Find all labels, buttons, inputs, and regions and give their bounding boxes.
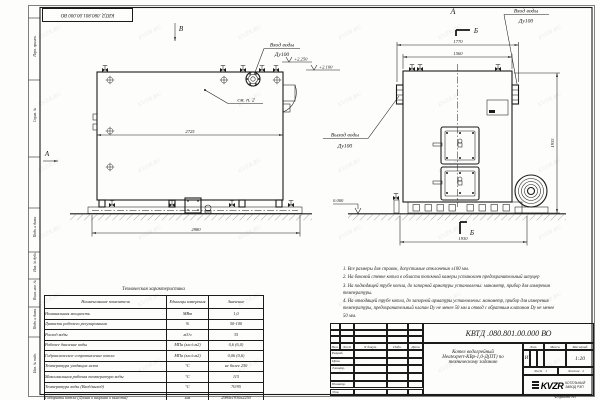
row-units: м3/ч [167, 330, 209, 341]
valve-icon [417, 65, 423, 72]
dim-1560: 1560 [453, 51, 463, 56]
kvzr-logo-icon [532, 381, 539, 390]
row-name: Температура уходящих газов [45, 361, 167, 372]
inlet-callout-dn: Ду100 [274, 52, 290, 58]
lifting-mark-icon [106, 127, 115, 136]
table-row: Номинальная мощностьМВт1,0 [45, 309, 264, 320]
scale-label: Масштаб [566, 343, 594, 350]
outlet-flange-icon [397, 85, 404, 104]
title-block: КВТД .080.801.00.000 ВО Изм. Лист N доку… [330, 323, 594, 396]
annotations [43, 15, 549, 214]
row-value: 50-100 [209, 319, 264, 330]
col-ndoc: N докум. [354, 343, 387, 350]
drain-valve-icon [393, 194, 399, 201]
dim-2725: 2725 [185, 129, 195, 134]
table-row: Температура уходящих газов°Сне более 250 [45, 361, 264, 372]
col-izm: Изм. [330, 343, 340, 350]
row-name: Рабочее давление воды [45, 340, 167, 351]
tech-col-value: Значение [209, 296, 264, 309]
sheets-cell: Листов 2 [558, 367, 594, 375]
inlet2-callout-label: Вход воды [514, 8, 539, 15]
tech-col-name: Наименование показателя [45, 296, 167, 309]
row-units: °С [167, 372, 209, 383]
row-prov: Пров. [330, 358, 354, 366]
notes-block: 1. Все размеры для справок, допустимые о… [343, 266, 559, 321]
tech-table-title: Техническая характеристика [44, 285, 263, 295]
kvzr-logo-subtitle: КОТЕЛЬНЫЙ ЗАВОД РЭП [565, 382, 585, 389]
lower-door [433, 167, 479, 200]
outlet-callout-label: Выход воды [331, 132, 359, 139]
col-data: Дата [408, 343, 423, 350]
inlet2-callout-dn: Ду100 [518, 19, 534, 25]
table-row: Гидравлическое сопротивление котлаМПа (к… [45, 351, 264, 362]
lit-value: И [523, 350, 530, 367]
row-name: Температура воды (Вход/выход) [45, 382, 167, 393]
dim-height: 1935 [550, 138, 555, 148]
format-label: Формат А3 [538, 394, 592, 399]
inlet-flange-icon [512, 85, 519, 104]
view-a-title: А [450, 7, 456, 16]
drain-valve-icon [109, 201, 115, 208]
logo-sub2: ЗАВОД РЭП [565, 386, 585, 390]
row-value: не более 250 [209, 361, 264, 372]
sheets-label: Листов [568, 369, 579, 373]
table-row: Диапазон рабочего регулирования%50-100 [45, 319, 264, 330]
drawing-sheet: KVZR.RUKVZR.RUKVZR.RUKVZR.RUKVZR.RUKVZR.… [0, 0, 600, 400]
dim-2980: 2980 [191, 227, 201, 232]
table-row: Рабочее давление водыМПа (кгс/см2)0,6 (6… [45, 340, 264, 351]
row-value: 1,0 [209, 309, 264, 320]
view-a-arrow-label: А [44, 150, 50, 158]
row-tkontr: Т.контр. [330, 365, 354, 373]
row-name: Номинальная мощность [45, 309, 167, 320]
note-1: 1. Все размеры для справок, допустимые о… [343, 266, 559, 273]
inlet-callout-label: Вход воды [270, 42, 295, 49]
row-name: Гидравлическое сопротивление котла [45, 351, 167, 362]
lifting-mark-icon [273, 76, 282, 85]
margin-label: Перв. примен. [33, 16, 37, 76]
row-value: 2980х1930х2250 [209, 393, 264, 400]
valve-icon [495, 65, 501, 72]
elevation-2250: +2.250 [294, 57, 308, 62]
drain-valve-icon [288, 201, 294, 208]
table-row: Габариты котла (Длина х ширина х высота)… [45, 393, 264, 400]
mass-label: Масса [544, 343, 566, 350]
product-name-line3: техническому заданию [424, 360, 522, 365]
control-panel [487, 100, 508, 115]
row-value: 70/95 [209, 382, 264, 393]
inlet-flange-icon [246, 72, 260, 86]
row-name: Максимальная рабочая температура воды [45, 372, 167, 383]
row-value: 0,6 (6,0) [209, 340, 264, 351]
col-podp: Подп. [387, 343, 408, 350]
col-list: Лист [340, 343, 354, 350]
row-units: МВт [167, 309, 209, 320]
lifting-mark-icon [106, 76, 115, 85]
drain-valve-icon [169, 201, 175, 208]
valve-icon [240, 66, 246, 73]
view-b-label: В [179, 25, 184, 33]
row-name: Расход воды [45, 330, 167, 341]
boiler-side-view [70, 66, 312, 237]
row-units: % [167, 319, 209, 330]
row-value: 35 [209, 330, 264, 341]
lifting-mark-icon [106, 163, 115, 172]
scale-value: 1:20 [566, 350, 594, 367]
lit-label: Лит. [523, 343, 544, 350]
sheets-value: 2 [582, 369, 584, 373]
margin-label: Инв. № подл. [33, 333, 37, 393]
valve-icon [409, 65, 415, 72]
dim-1930: 1930 [458, 236, 468, 241]
row-units: °С [167, 382, 209, 393]
tech-characteristics: Техническая характеристика Наименование … [44, 285, 263, 400]
row-units: мм [167, 393, 209, 400]
drain-valve-icon [229, 201, 235, 208]
row-nkontr: Н.контр. [330, 381, 354, 389]
elevation-2100: +2.100 [319, 65, 333, 70]
row-razrab: Разраб. [330, 350, 354, 358]
row-units: °С [167, 361, 209, 372]
table-row: Расход водым3/ч35 [45, 330, 264, 341]
note-3: 3. На подводящей трубе котла, до запорно… [343, 283, 559, 298]
row-units: МПа (кгс/см2) [167, 351, 209, 362]
mass-value [544, 350, 566, 367]
row-value: 115 [209, 372, 264, 383]
table-row: Температура воды (Вход/выход)°С70/95 [45, 382, 264, 393]
elevation-0000: 0.000 [333, 198, 344, 203]
row-name: Диапазон рабочего регулирования [45, 319, 167, 330]
boiler-front-view [348, 30, 566, 246]
valve-icon [273, 66, 279, 73]
tech-col-units: Единицы измерения [167, 296, 209, 309]
row-name: Габариты котла (Длина х ширина х высота) [45, 393, 167, 400]
valve-icon [220, 66, 226, 73]
lifting-mark-icon [220, 76, 229, 85]
row-value: 0,06 (0,6) [209, 351, 264, 362]
see-note-label: см. п. 2 [237, 98, 254, 104]
valve-icon [102, 66, 108, 73]
doc-number: КВТД .080.801.00.000 ВО [423, 323, 594, 343]
outlet-callout-dn: Ду100 [337, 144, 353, 150]
sheet-cell: Лист 1 [523, 367, 558, 375]
dim-1770: 1770 [453, 39, 463, 44]
row-utv: Утв. [330, 389, 354, 397]
row-units: МПа (кгс/см2) [167, 340, 209, 351]
sheet-label: Лист [534, 369, 542, 373]
margin-label: Справ. № [33, 85, 37, 145]
section-b-top-label: Б [473, 27, 478, 35]
sheet-value: 1 [545, 369, 547, 373]
table-row: Максимальная рабочая температура воды°С1… [45, 372, 264, 383]
upper-door [433, 127, 479, 164]
revision-grid [330, 323, 423, 343]
top-stamp-doc-number: КВТД .080.801.00.000 ВО [42, 8, 133, 22]
blower-fan-icon [515, 175, 548, 213]
valve-icon [259, 66, 265, 73]
note-2: 2. На боковой стенке котла в области топ… [343, 274, 559, 281]
company-cell: KVZR КОТЕЛЬНЫЙ ЗАВОД РЭП [523, 375, 594, 396]
section-b-bottom-label: Б [469, 229, 474, 237]
note-4: 4. На отводящей трубе котла, до запорной… [343, 298, 559, 320]
base-frame [408, 202, 522, 213]
kvzr-logo-text: KVZR [541, 381, 564, 391]
product-name: Котел водогрейный Heatexpert-КВр-1,0-Д(П… [423, 343, 523, 396]
